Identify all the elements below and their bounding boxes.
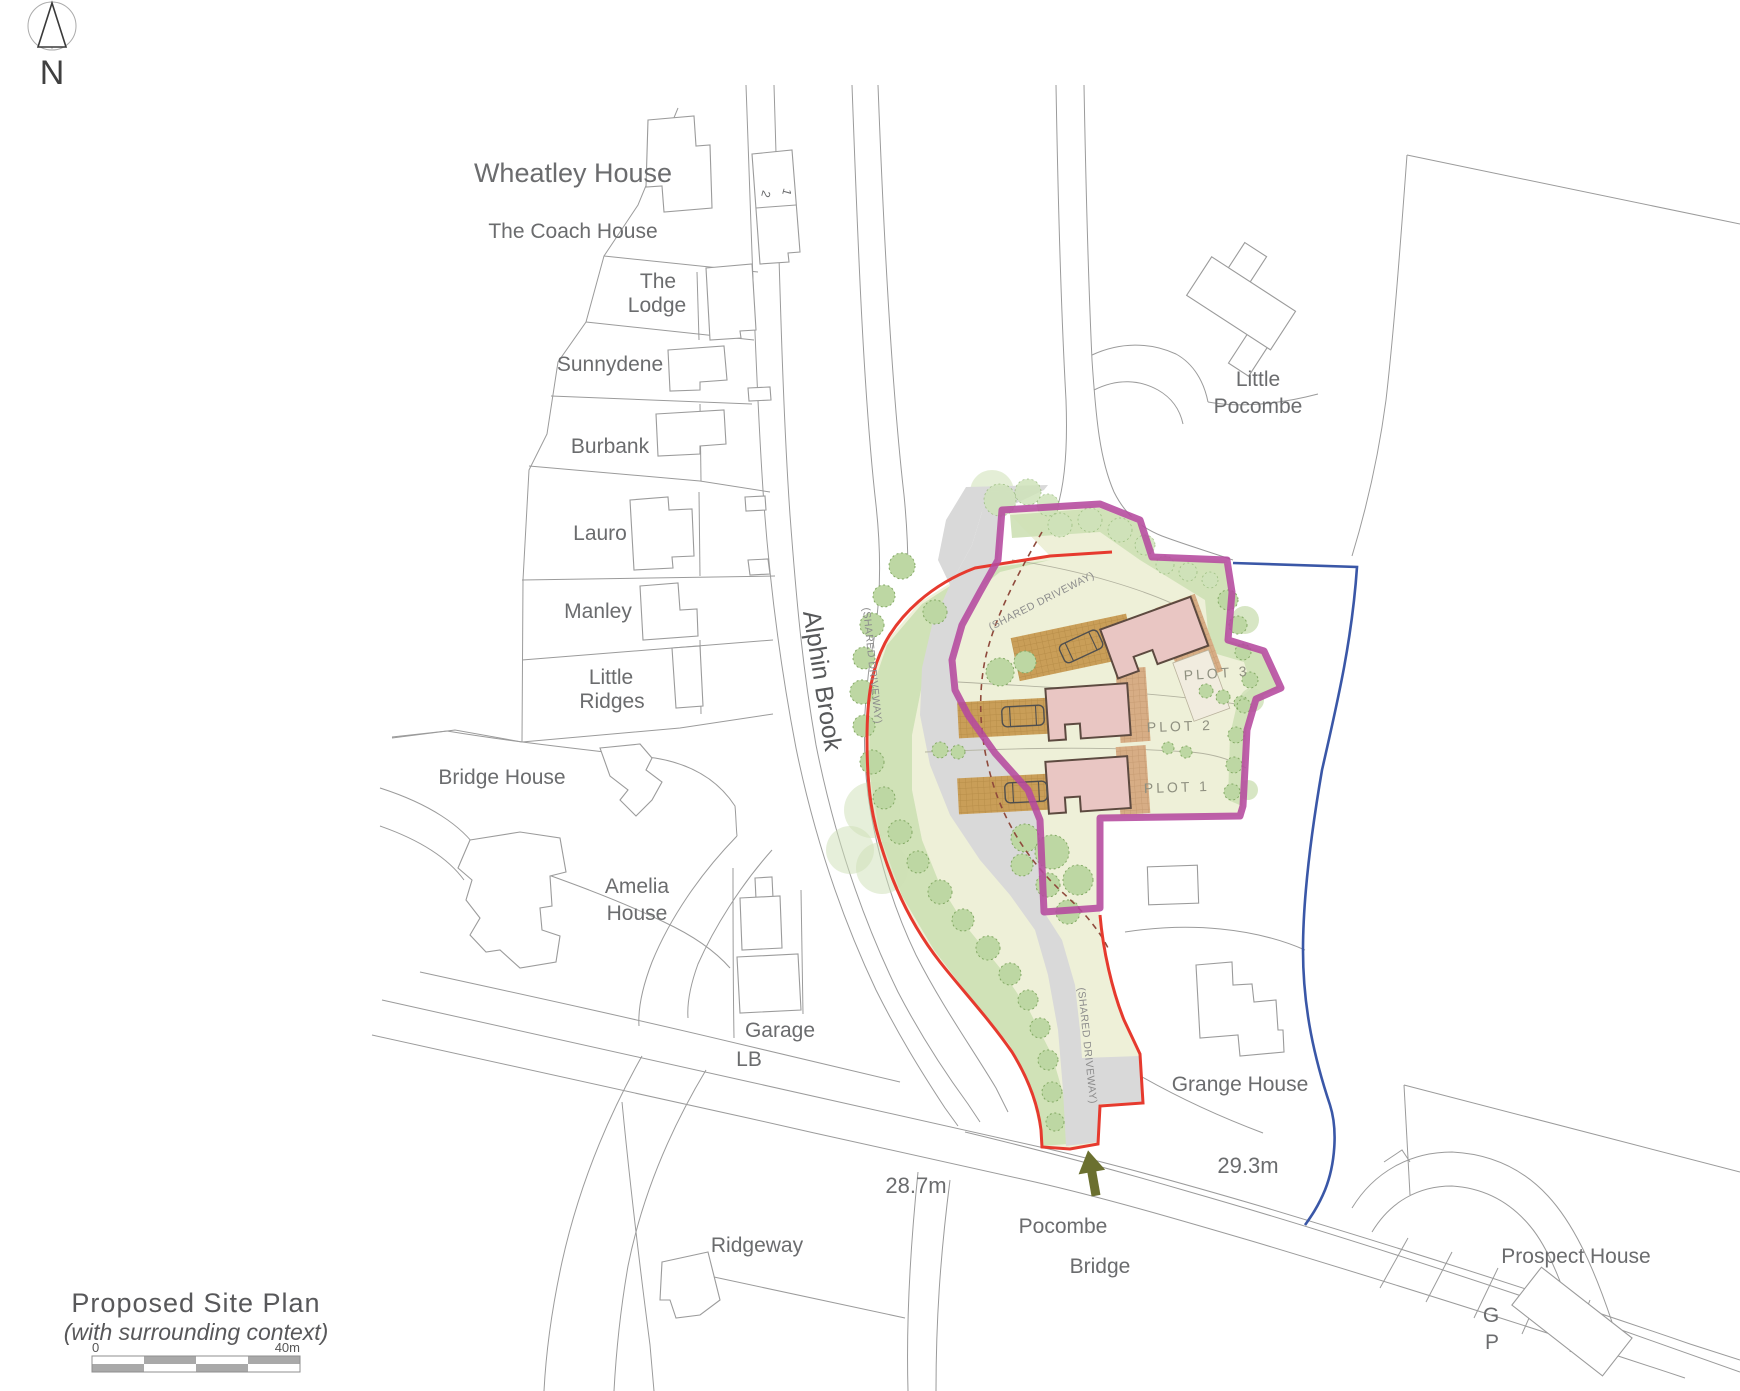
label-plot-2: PLOT 2 bbox=[1147, 717, 1214, 735]
label-little-pocombe-2: Pocombe bbox=[1214, 395, 1303, 418]
spot-height-29-3: 29.3m bbox=[1217, 1153, 1278, 1178]
drawing-title: Proposed Site Plan bbox=[71, 1288, 320, 1318]
label-amelia-1: Amelia bbox=[605, 875, 670, 898]
label-gp-p: P bbox=[1485, 1331, 1499, 1354]
nw-bottom-connector bbox=[392, 730, 522, 742]
little-pocombe-building bbox=[1168, 232, 1312, 379]
field-line-side bbox=[1352, 155, 1407, 556]
garage-building-a bbox=[755, 877, 773, 899]
label-pocombe: Pocombe bbox=[1019, 1215, 1108, 1238]
parcel-divider-4 bbox=[529, 466, 770, 492]
nw-back-garden-line bbox=[522, 108, 678, 742]
parcel-vertical-1 bbox=[697, 272, 699, 340]
site-plan-page: Wheatley House The Coach House The Lodge… bbox=[0, 0, 1740, 1391]
amelia-lane-d bbox=[380, 826, 464, 880]
small-building-2 bbox=[745, 496, 766, 511]
site-plan-drawing: Wheatley House The Coach House The Lodge… bbox=[0, 0, 1740, 1391]
entrance-lane-a bbox=[1052, 85, 1066, 522]
plot2-house bbox=[1045, 683, 1130, 741]
prospect-chevron bbox=[1384, 1150, 1410, 1162]
little-pocombe-drive-a bbox=[1092, 345, 1208, 402]
amelia-lane-c bbox=[380, 788, 478, 850]
ridgeway-parcel-b bbox=[622, 1102, 654, 1391]
side-road-a bbox=[544, 1056, 642, 1391]
bridge-house-building bbox=[600, 744, 662, 816]
north-arrow: N bbox=[28, 2, 76, 92]
lauro-building bbox=[630, 497, 694, 570]
label-plot-1: PLOT 1 bbox=[1144, 778, 1211, 796]
small-building-3 bbox=[748, 559, 770, 575]
prospect-parcel-top bbox=[1404, 1085, 1740, 1172]
label-gp-g: G bbox=[1483, 1304, 1499, 1327]
label-lb: LB bbox=[736, 1048, 762, 1071]
ridgeway-building bbox=[660, 1252, 720, 1318]
side-road-b bbox=[614, 1070, 706, 1391]
scale-max: 40m bbox=[275, 1340, 300, 1355]
garage-parcel-a bbox=[733, 868, 734, 1038]
title-block: Proposed Site Plan (with surrounding con… bbox=[64, 1288, 329, 1372]
label-alphin-brook: Alphin Brook bbox=[797, 609, 847, 754]
label-garage: Garage bbox=[745, 1019, 815, 1042]
amelia-lane-a bbox=[639, 836, 737, 1026]
entrance-lane-b bbox=[1084, 85, 1233, 560]
parcel-divider-3 bbox=[551, 396, 752, 404]
plot1-house bbox=[1045, 756, 1130, 814]
label-bridge-house: Bridge House bbox=[438, 766, 565, 789]
grange-outbuilding bbox=[1147, 865, 1198, 905]
label-wheatley-house: Wheatley House bbox=[474, 158, 672, 188]
sunnydene-building bbox=[668, 346, 727, 391]
se-diag-1 bbox=[1380, 1238, 1408, 1288]
prospect-parcel-side bbox=[1404, 1085, 1410, 1195]
label-prospect-house: Prospect House bbox=[1501, 1245, 1650, 1268]
se-diag-2 bbox=[1426, 1252, 1452, 1302]
burbank-building bbox=[656, 410, 726, 456]
grange-house-building bbox=[1196, 962, 1284, 1056]
label-little-pocombe-1: Little bbox=[1236, 368, 1280, 391]
prospect-house-building bbox=[1512, 1267, 1632, 1376]
garage-building-b bbox=[740, 896, 782, 950]
garage-building-c bbox=[737, 954, 801, 1013]
label-grange-house: Grange House bbox=[1172, 1073, 1309, 1096]
stream-b bbox=[936, 1180, 950, 1391]
label-lodge-1: The bbox=[640, 270, 676, 293]
stream-a bbox=[907, 1172, 918, 1391]
parcel-divider-5 bbox=[522, 576, 775, 580]
label-lodge-2: Lodge bbox=[628, 294, 686, 317]
label-manley: Manley bbox=[564, 600, 632, 623]
amelia-house-building bbox=[458, 832, 566, 968]
label-amelia-2: House bbox=[607, 902, 668, 925]
label-little-ridges-1: Little bbox=[589, 666, 633, 689]
garage-parcel-b bbox=[801, 890, 803, 1014]
label-lauro: Lauro bbox=[573, 522, 627, 545]
label-ridgeway: Ridgeway bbox=[711, 1234, 804, 1257]
scale-bar bbox=[92, 1356, 300, 1372]
manley-building bbox=[640, 583, 698, 640]
spot-height-28-7: 28.7m bbox=[885, 1173, 946, 1198]
label-bridge: Bridge bbox=[1070, 1255, 1131, 1278]
north-label: N bbox=[40, 54, 65, 92]
lodge-building bbox=[706, 264, 756, 340]
scale-zero: 0 bbox=[92, 1340, 99, 1355]
field-line-top bbox=[1407, 155, 1740, 224]
north-arrow-needle-icon bbox=[38, 3, 66, 47]
label-little-ridges-2: Ridges bbox=[579, 690, 644, 713]
brook-east-edge bbox=[878, 85, 908, 575]
parcel-divider-7 bbox=[522, 714, 773, 742]
little-pocombe-drive-b bbox=[1094, 382, 1183, 424]
small-building-1 bbox=[748, 387, 771, 401]
grange-parcel-a bbox=[1125, 927, 1305, 950]
label-sunnydene: Sunnydene bbox=[557, 353, 663, 376]
parcel-divider-6 bbox=[522, 640, 773, 660]
parcel-vertical-3 bbox=[699, 492, 700, 576]
label-coach-house: The Coach House bbox=[488, 220, 657, 243]
little-ridges-building bbox=[672, 646, 703, 708]
ridgeway-parcel-a bbox=[700, 1274, 905, 1318]
label-burbank: Burbank bbox=[571, 435, 650, 458]
verge-line bbox=[420, 972, 900, 1082]
site-entrance-arrow bbox=[1075, 1148, 1110, 1198]
